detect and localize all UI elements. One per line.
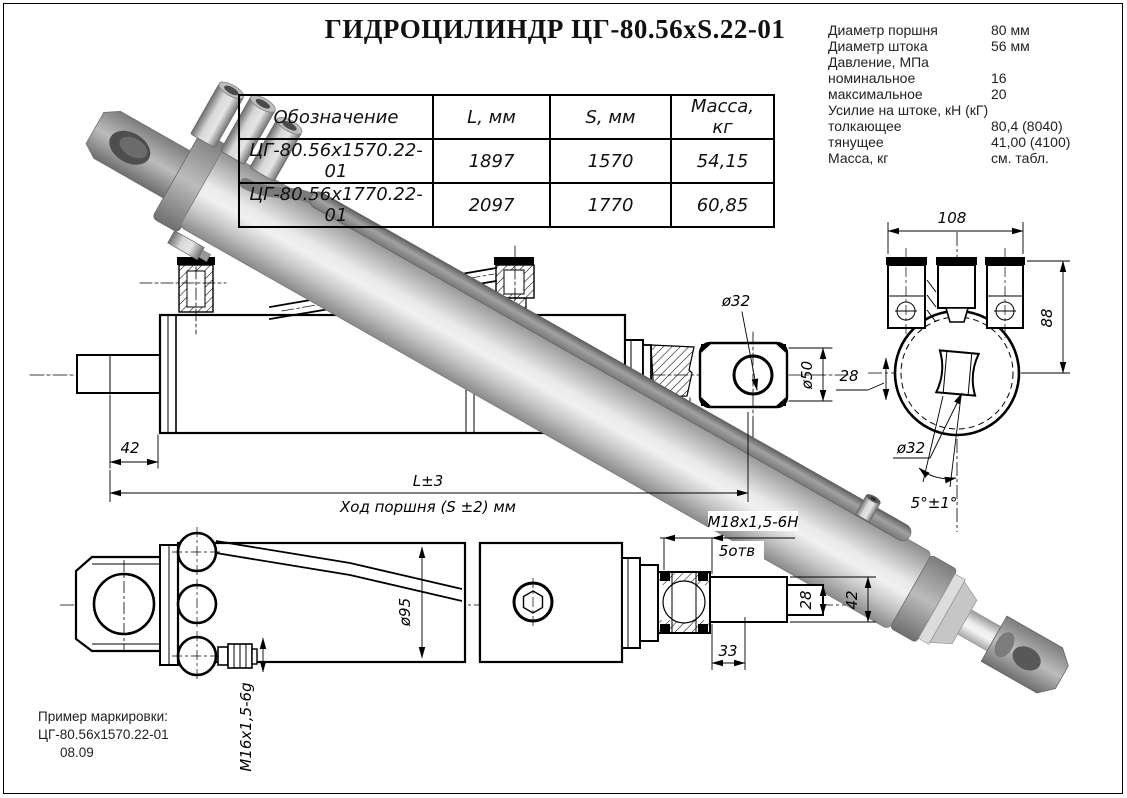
spec-row: толкающее80,4 (8040): [828, 118, 1110, 134]
marking-line-3: 08.09: [38, 744, 169, 762]
dim-108: 108: [938, 209, 967, 227]
spec-row: Усилие на штоке, кН (кГ): [828, 102, 1110, 118]
dim-piston-stroke: Ход поршня (S ±2) мм: [339, 498, 516, 516]
cell-mass: 54,15: [671, 139, 774, 183]
dim-42-rod: 42: [843, 590, 861, 609]
marking-line-1: Пример маркировки:: [38, 708, 169, 726]
cell-designation: ЦГ-80.56х1770.22-01: [239, 183, 433, 227]
spec-label: Давление, МПа: [828, 54, 991, 70]
page-title: ГИДРОЦИЛИНДР ЦГ-80.56xS.22-01: [250, 14, 860, 45]
dim-dia32-end: ø32: [896, 439, 925, 457]
spec-label: толкающее: [828, 118, 991, 134]
dim-42-left: 42: [120, 439, 139, 457]
spec-row: Масса, кгсм. табл.: [828, 150, 1110, 166]
spec-row: номинальное16: [828, 70, 1110, 86]
spec-label: максимальное: [828, 86, 991, 102]
dim-m18-holes-count: 5отв: [719, 542, 755, 560]
marking-line-2: ЦГ-80.56х1570.22-01: [38, 726, 169, 744]
table-row: ЦГ-80.56х1570.22-01 1897 1570 54,15: [239, 139, 774, 183]
dim-28-rod: 28: [797, 590, 815, 609]
table-header-row: Обозначение L, мм S, мм Масса, кг: [239, 95, 774, 139]
dim-28-slot: 28: [839, 367, 858, 385]
spec-label: Масса, кг: [828, 150, 991, 166]
spec-value: 80,4 (8040): [991, 118, 1110, 134]
spec-label: номинальное: [828, 70, 991, 86]
col-header-stroke: S, мм: [550, 95, 671, 139]
end-view-drawing: 108 88 28 ø32 5°±1°: [836, 209, 1070, 532]
spec-value: 80 мм: [991, 22, 1110, 38]
spec-list: Диаметр поршня80 мм Диаметр штока56 мм Д…: [828, 22, 1110, 166]
dim-dia32-rod-eye: ø32: [721, 292, 750, 310]
spec-row: Давление, МПа: [828, 54, 1110, 70]
spec-row: тянущее41,00 (4100): [828, 134, 1110, 150]
spec-row: Диаметр штока56 мм: [828, 38, 1110, 54]
dim-dia95: ø95: [396, 598, 414, 627]
spec-label: Диаметр штока: [828, 38, 991, 54]
spec-row: максимальное20: [828, 86, 1110, 102]
col-header-length: L, мм: [433, 95, 550, 139]
dim-dia50: ø50: [798, 361, 816, 390]
marking-example: Пример маркировки: ЦГ-80.56х1570.22-01 0…: [38, 708, 169, 762]
drawing-sheet: 42 ø32 ø50 52: [0, 0, 1127, 798]
table-row: ЦГ-80.56х1770.22-01 2097 1770 60,85: [239, 183, 774, 227]
col-header-mass: Масса, кг: [671, 95, 774, 139]
cell-stroke: 1770: [550, 183, 671, 227]
col-header-designation: Обозначение: [239, 95, 433, 139]
cell-stroke: 1570: [550, 139, 671, 183]
dim-angle-5: 5°±1°: [911, 494, 958, 512]
dim-m18-thread: М18х1,5-6Н: [708, 513, 799, 531]
spec-value: 41,00 (4100): [991, 134, 1110, 150]
spec-value: [991, 54, 1110, 70]
cell-length: 1897: [433, 139, 550, 183]
spec-value: [991, 102, 1110, 118]
variants-table: Обозначение L, мм S, мм Масса, кг ЦГ-80.…: [238, 94, 775, 228]
cell-length: 2097: [433, 183, 550, 227]
dim-l-plus-3: L±3: [413, 472, 443, 490]
cell-designation: ЦГ-80.56х1570.22-01: [239, 139, 433, 183]
dim-m16-thread: М16х1,5-6g: [237, 682, 255, 771]
spec-value: см. табл.: [991, 150, 1110, 166]
spec-value: 56 мм: [991, 38, 1110, 54]
spec-label: Диаметр поршня: [828, 22, 991, 38]
spec-label: тянущее: [828, 134, 991, 150]
spec-row: Диаметр поршня80 мм: [828, 22, 1110, 38]
dim-33: 33: [718, 642, 737, 660]
dim-88: 88: [1038, 308, 1056, 327]
cell-mass: 60,85: [671, 183, 774, 227]
spec-label: Усилие на штоке, кН (кГ): [828, 102, 991, 118]
spec-value: 16: [991, 70, 1110, 86]
spec-value: 20: [991, 86, 1110, 102]
